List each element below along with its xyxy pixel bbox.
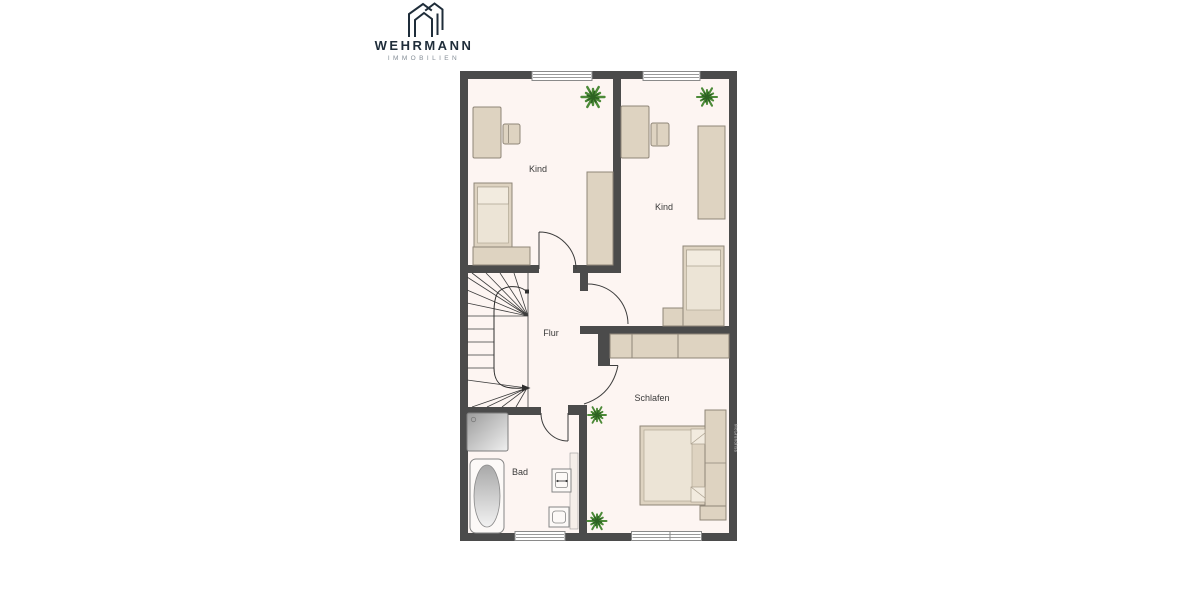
desk-chair <box>651 123 669 146</box>
wall-kindleft-bottom-a <box>460 265 539 273</box>
bed-foot-bench <box>700 506 726 520</box>
watermark: McGrundriss <box>734 424 739 453</box>
window <box>515 532 565 541</box>
room-label-schlafen: Schlafen <box>634 393 669 403</box>
shower <box>467 413 508 451</box>
wardrobe-segment <box>610 334 632 358</box>
logo-title: WEHRMANN <box>364 38 484 53</box>
wall-between-kind-rooms <box>613 79 621 273</box>
nightstand <box>663 308 683 326</box>
wall-schlafen-top <box>580 326 737 334</box>
room-label-flur: Flur <box>543 328 559 338</box>
logo: WEHRMANN IMMOBILIEN <box>364 1 484 62</box>
desk <box>473 107 501 158</box>
page: WEHRMANN IMMOBILIEN <box>0 0 1200 600</box>
room-label-bad: Bad <box>512 467 528 477</box>
faucet-dot <box>556 480 558 482</box>
wall-bad-schlafen <box>579 405 587 541</box>
window <box>632 532 702 541</box>
bed-pillow <box>687 250 721 266</box>
bed-pillow <box>691 429 705 444</box>
room-label-kind-left: Kind <box>529 164 547 174</box>
wall-kindleft-bottom-b <box>573 265 621 273</box>
bed-pillow <box>691 487 705 502</box>
walkline-start-dot <box>525 290 529 294</box>
floorplan: Kind Kind <box>453 60 749 550</box>
wardrobe-segment <box>632 334 678 358</box>
toilet <box>549 507 569 527</box>
wardrobe <box>587 172 613 265</box>
logo-house-icon <box>401 1 447 37</box>
bathtub-basin <box>474 465 500 527</box>
wall-flur-stub-top <box>580 273 588 291</box>
wall-schlafen-door-stub <box>598 334 610 366</box>
bed-foot-chest <box>473 247 530 265</box>
desk-chair <box>503 124 520 144</box>
bed-frame-side <box>705 410 726 506</box>
wall-bad-top-b <box>568 405 587 415</box>
room-label-kind-right: Kind <box>655 202 673 212</box>
faucet-dot <box>565 480 567 482</box>
wardrobe-segment <box>678 334 729 358</box>
window <box>643 72 700 81</box>
desk <box>621 106 649 158</box>
window <box>532 72 592 81</box>
wardrobe <box>698 126 725 219</box>
bed-blanket <box>644 430 692 501</box>
bed-pillow <box>478 187 509 204</box>
